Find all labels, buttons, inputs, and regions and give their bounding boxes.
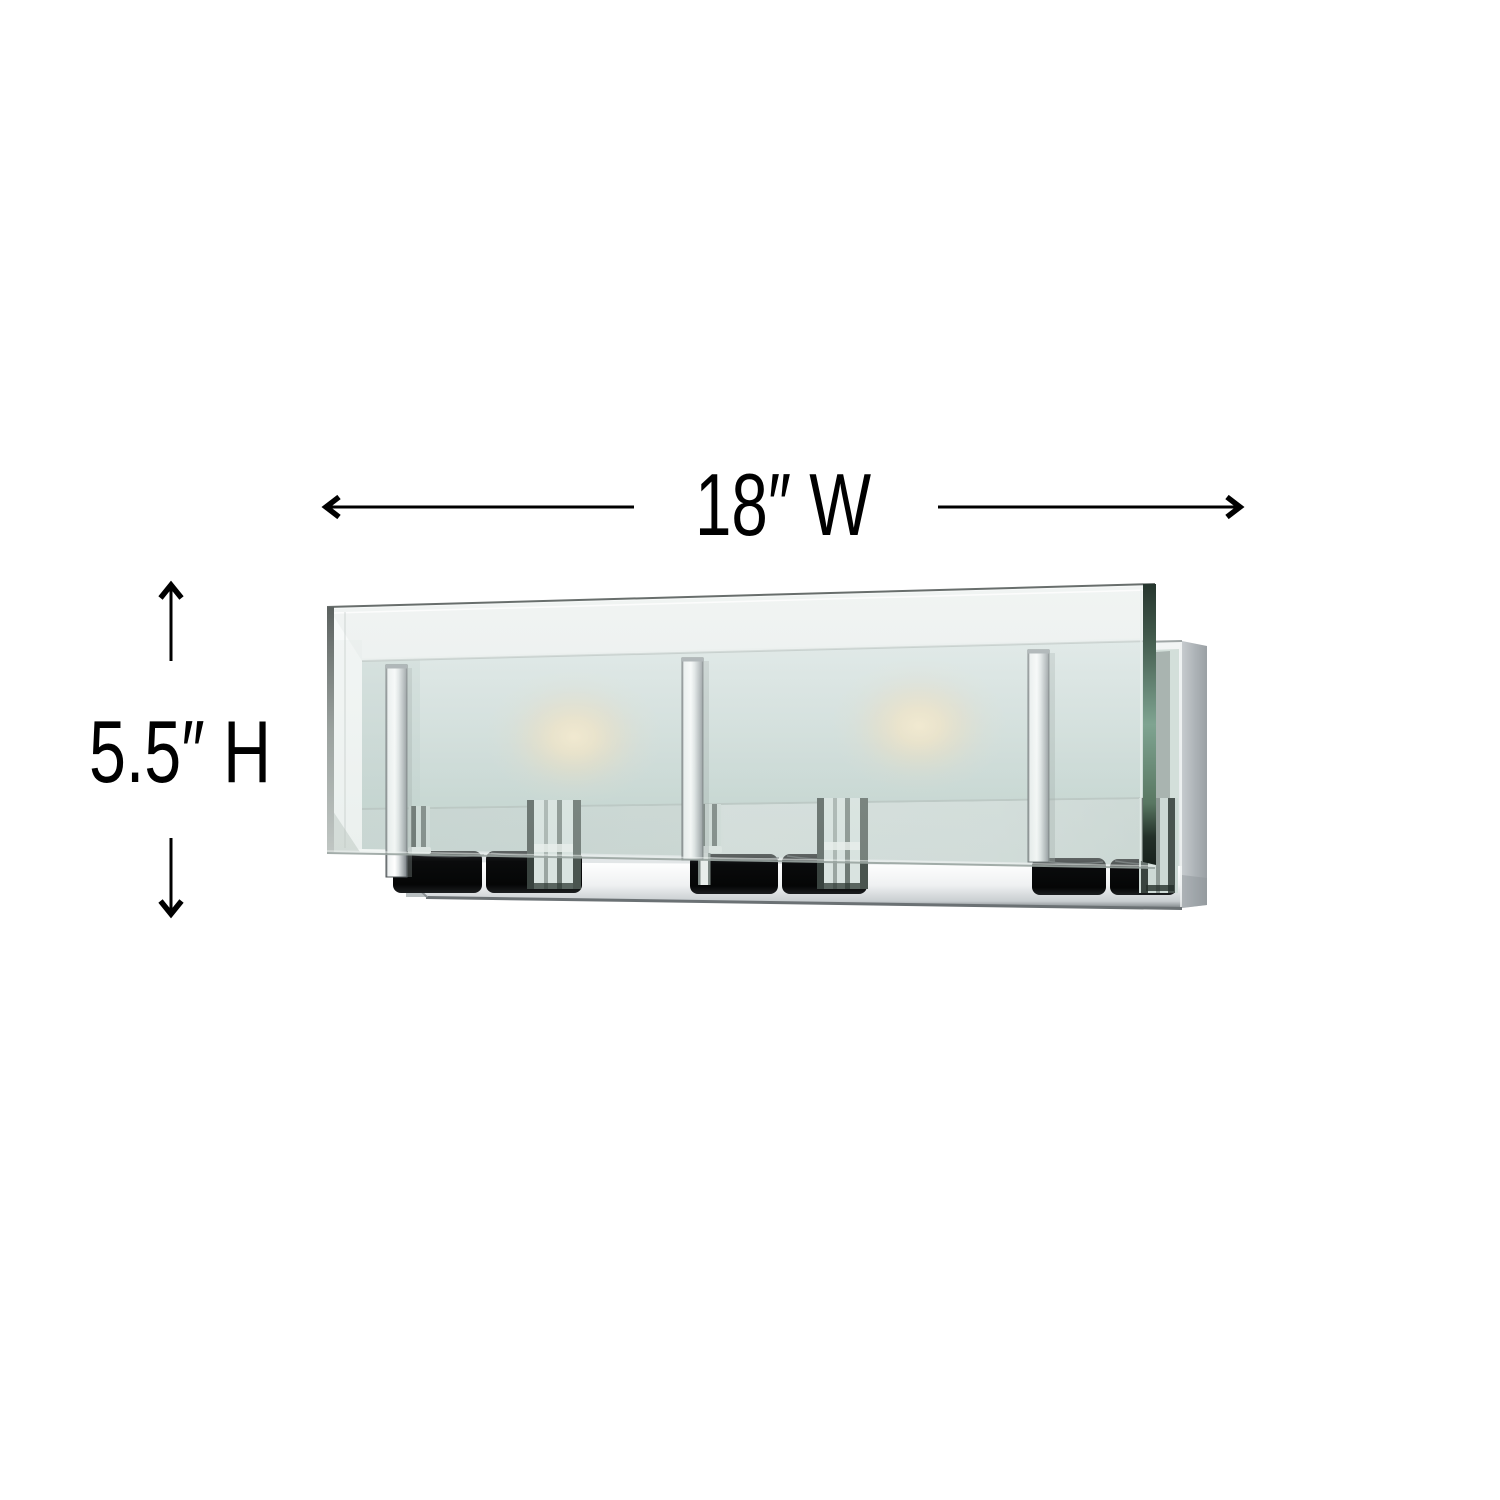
svg-text:5.5″ H: 5.5″ H [89,702,271,801]
svg-text:18″ W: 18″ W [695,455,871,554]
